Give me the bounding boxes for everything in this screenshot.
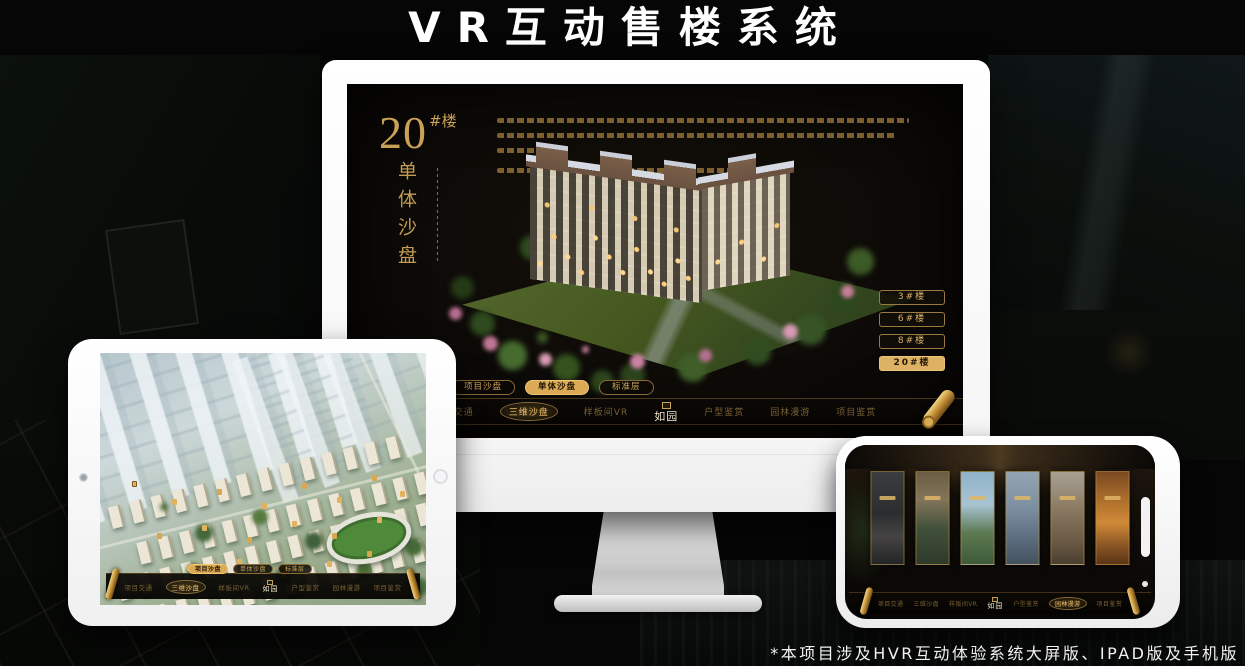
nav-item-model-room-vr[interactable]: 样板间VR — [219, 582, 250, 592]
tab-project-sandbox[interactable]: 项目沙盘 — [451, 380, 515, 395]
nav-item-traffic[interactable]: 项目交通 — [125, 582, 153, 592]
text-line — [497, 118, 909, 123]
scene-card[interactable] — [1006, 471, 1040, 565]
text-line — [497, 133, 897, 138]
tablet-home-button[interactable] — [433, 469, 448, 484]
seal-icon — [662, 402, 671, 409]
tab-single-sandbox[interactable]: 单体沙盘 — [233, 564, 273, 574]
nav-item-garden-roam[interactable]: 园林漫游 — [770, 405, 810, 418]
nav-item-3d-sandbox[interactable]: 三维沙盘 — [500, 402, 558, 421]
phone-mockup: 项目交通 三维沙盘 样板间VR 如园 户型鉴赏 园林漫游 项目鉴赏 — [836, 436, 1180, 628]
building-number-suffix: #楼 — [429, 112, 457, 130]
nav-item-traffic[interactable]: 项目交通 — [878, 599, 904, 608]
page-title: VR互动售楼系统 — [16, 0, 1245, 56]
sandbox-tab-group: 项目沙盘 单体沙盘 标准层 — [451, 380, 654, 395]
floor-button-6[interactable]: 6#楼 — [879, 312, 945, 327]
scene-card[interactable] — [1096, 471, 1130, 565]
flower-decoration — [582, 346, 589, 353]
scene-card[interactable] — [916, 471, 950, 565]
bottom-nav-bar: 项目交通 三维沙盘 样板间VR 如园 户型鉴赏 园林漫游 项目鉴赏 — [106, 573, 420, 599]
building-left-facade — [530, 165, 702, 303]
building-right-facade — [702, 171, 790, 291]
floor-button-group: 3#楼 6#楼 8#楼 20#楼 — [879, 290, 949, 378]
building-heading: 20#楼 单体沙盘 — [379, 106, 455, 291]
tablet-mockup: 项目沙盘 单体沙盘 标准层 项目交通 三维沙盘 样板间VR 如园 户型鉴赏 园林… — [68, 339, 456, 626]
logo-text: 如园 — [262, 586, 278, 593]
tab-project-sandbox[interactable]: 项目沙盘 — [188, 564, 228, 574]
scene-card[interactable] — [871, 471, 905, 565]
tab-standard-floor[interactable]: 标准层 — [599, 380, 654, 395]
tree-decoration — [537, 332, 548, 343]
phone-screen: 项目交通 三维沙盘 样板间VR 如园 户型鉴赏 园林漫游 项目鉴赏 — [845, 445, 1155, 619]
monitor-stand-base — [554, 595, 762, 612]
floor-button-20[interactable]: 20#楼 — [879, 356, 945, 371]
ruyuan-logo: 如园 — [262, 580, 278, 593]
nav-item-3d-sandbox[interactable]: 三维沙盘 — [166, 580, 206, 594]
floor-button-3[interactable]: 3#楼 — [879, 290, 945, 305]
heading-divider — [437, 168, 438, 264]
nav-item-unit-view[interactable]: 户型鉴赏 — [1013, 599, 1039, 608]
tablet-screen: 项目沙盘 单体沙盘 标准层 项目交通 三维沙盘 样板间VR 如园 户型鉴赏 园林… — [100, 353, 426, 605]
scene-card[interactable] — [961, 471, 995, 565]
tree-decoration — [160, 503, 168, 511]
scroll-roller-icon — [406, 568, 422, 601]
nav-item-project-view[interactable]: 项目鉴赏 — [373, 582, 401, 592]
building-3d-model[interactable] — [522, 150, 812, 325]
nav-item-project-view[interactable]: 项目鉴赏 — [836, 405, 876, 418]
footnote-text: *本项目涉及HVR互动体验系统大屏版、IPAD版及手机版 — [770, 640, 1239, 664]
tablet-camera-icon — [79, 473, 88, 482]
roof-cap — [536, 142, 568, 170]
background-aerial-photo — [988, 55, 1245, 310]
scene-card-row — [871, 471, 1130, 565]
ruyuan-logo: 如园 — [654, 402, 678, 422]
ruyuan-logo: 如园 — [987, 597, 1003, 610]
floor-button-8[interactable]: 8#楼 — [879, 334, 945, 349]
heading-vertical-text: 单体沙盘 — [393, 161, 420, 291]
monitor-stand-neck — [592, 510, 724, 598]
scene-card[interactable] — [1051, 471, 1085, 565]
nav-item-model-room-vr[interactable]: 样板间VR — [584, 405, 628, 418]
bottom-nav-bar: 项目交通 三维沙盘 样板间VR 如园 户型鉴赏 园林漫游 项目鉴赏 — [849, 592, 1151, 614]
nav-item-project-view[interactable]: 项目鉴赏 — [1097, 599, 1123, 608]
building-number: 20 — [379, 107, 427, 158]
phone-bezel-pill — [1141, 497, 1150, 557]
roof-cap — [664, 160, 696, 188]
logo-text: 如园 — [654, 411, 678, 422]
sandbox-tab-group: 项目沙盘 单体沙盘 标准层 — [188, 564, 312, 574]
roof-cap — [728, 153, 756, 182]
tab-single-sandbox[interactable]: 单体沙盘 — [525, 380, 589, 395]
nav-item-3d-sandbox[interactable]: 三维沙盘 — [913, 599, 939, 608]
scroll-roller-icon — [105, 568, 121, 601]
nav-item-garden-roam[interactable]: 园林漫游 — [1049, 597, 1087, 610]
building-number-markers[interactable] — [132, 481, 137, 487]
background-plaque — [105, 219, 199, 335]
nav-item-unit-view[interactable]: 户型鉴赏 — [291, 582, 319, 592]
nav-item-model-room-vr[interactable]: 样板间VR — [949, 599, 977, 608]
logo-text: 如园 — [987, 603, 1003, 610]
phone-camera-icon — [1142, 581, 1148, 587]
roof-cap — [600, 151, 632, 179]
nav-item-unit-view[interactable]: 户型鉴赏 — [704, 405, 744, 418]
nav-item-garden-roam[interactable]: 园林漫游 — [332, 582, 360, 592]
tab-standard-floor[interactable]: 标准层 — [278, 564, 312, 574]
